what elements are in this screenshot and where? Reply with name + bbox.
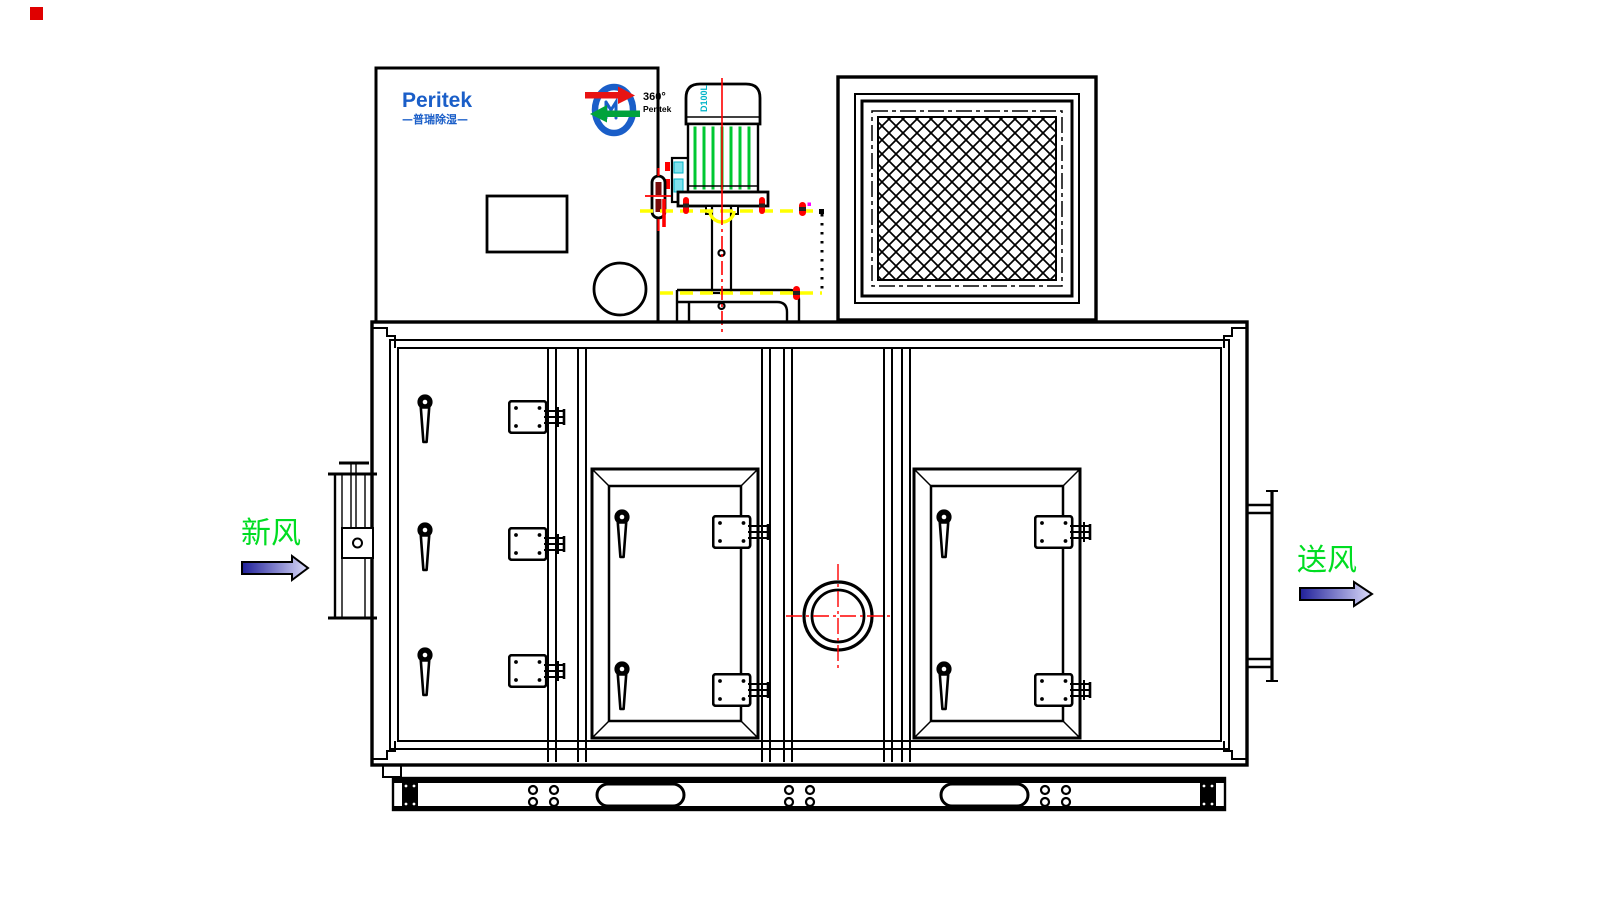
rotor-badge-degree: 360° — [643, 91, 666, 103]
corner-bracket-top-right — [1224, 328, 1247, 348]
door-handle-icon — [417, 647, 432, 695]
fresh-air-label: 新风 — [241, 516, 301, 551]
inspection-window — [487, 196, 567, 252]
door-handle-icon — [936, 661, 951, 709]
rotor-badge-brand: Peritek — [643, 104, 672, 114]
supply-air-annotation: 送风 — [1297, 543, 1372, 606]
door-latch-icon — [1035, 674, 1090, 706]
door-latch-icon — [1035, 516, 1090, 548]
drawing-canvas: Peritek —普瑞除湿— 360° Peritek D100L — [0, 0, 1613, 897]
door-handle-icon — [417, 394, 432, 442]
fresh-air-arrow-icon — [242, 556, 308, 580]
damper-actuator-box — [342, 528, 373, 558]
foot-right — [1200, 782, 1216, 808]
door-handle-icon — [614, 509, 629, 557]
latch-pin-icon — [645, 168, 671, 231]
magenta-snap-point — [808, 203, 812, 207]
corner-bracket-bottom-left — [372, 741, 395, 759]
door-handle-icon — [614, 661, 629, 709]
supply-air-arrow-icon — [1300, 582, 1372, 606]
brand-logo-text: Peritek — [402, 89, 472, 112]
supply-air-outlet-duct — [1247, 491, 1278, 681]
sight-glass-centerlines — [786, 564, 890, 668]
motor-assembly: D100L — [640, 78, 824, 332]
fresh-air-annotation: 新风 — [241, 516, 308, 580]
motor-frame-label: D100L — [699, 84, 709, 112]
foot-left — [402, 782, 418, 808]
corner-bracket-top-left — [372, 328, 395, 348]
motor-base-plate — [678, 192, 768, 206]
red-corner-marker — [30, 7, 43, 20]
dehumidifier-technical-drawing: Peritek —普瑞除湿— 360° Peritek D100L — [0, 0, 1613, 897]
door-latch-icon — [713, 674, 768, 706]
motor-cap — [686, 84, 760, 124]
grille-mesh — [878, 117, 1056, 280]
motor-mounting-bracket — [677, 290, 799, 322]
forklift-slot-left — [597, 784, 684, 806]
door-handle-icon — [417, 522, 432, 570]
access-door-middle — [592, 469, 768, 738]
brand-logo: Peritek —普瑞除湿— — [402, 89, 472, 126]
mesh-grille-duct — [838, 77, 1096, 320]
forklift-slot-right — [941, 784, 1028, 806]
access-door-right — [914, 469, 1090, 738]
base-rail — [383, 765, 1225, 810]
corner-bracket-bottom-right — [1224, 741, 1247, 759]
supply-air-label: 送风 — [1297, 543, 1357, 578]
main-cabinet — [372, 322, 1247, 765]
sight-glass — [786, 564, 890, 668]
inspection-port-circle — [594, 263, 646, 315]
brand-logo-tagline: —普瑞除湿— — [402, 112, 468, 126]
door-latch-icon — [713, 516, 768, 548]
door-handle-icon — [936, 509, 951, 557]
fresh-air-inlet-duct — [328, 463, 377, 618]
access-panel-left — [417, 394, 564, 695]
